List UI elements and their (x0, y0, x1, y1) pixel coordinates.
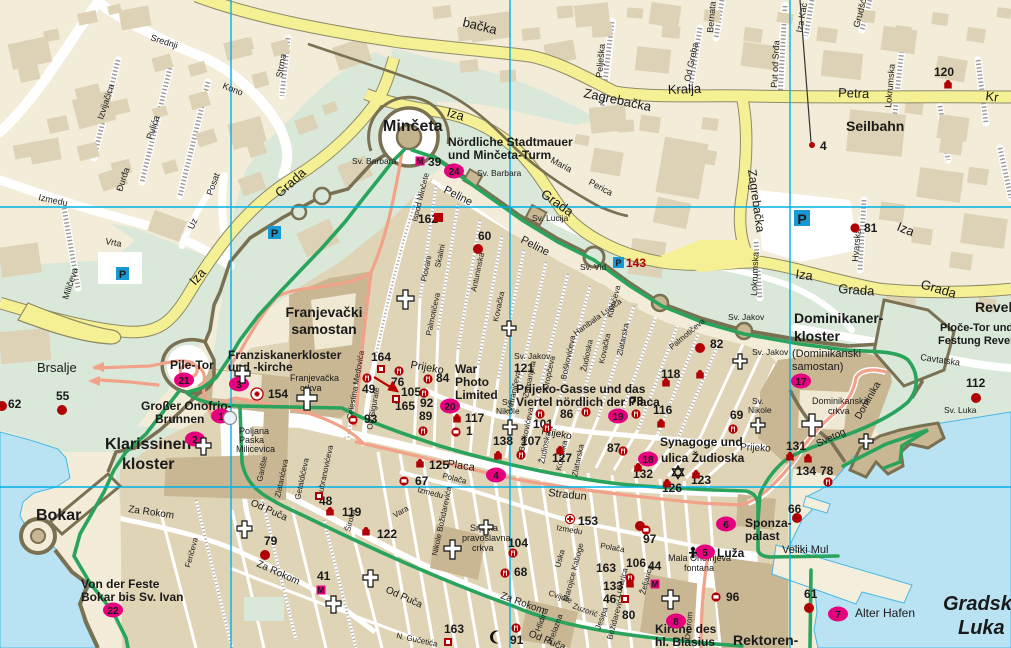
svg-text:crkva: crkva (828, 406, 850, 416)
svg-text:17: 17 (795, 377, 807, 388)
svg-text:8: 8 (673, 617, 679, 628)
svg-text:24: 24 (448, 167, 460, 178)
svg-text:106: 106 (626, 556, 646, 570)
svg-text:49: 49 (362, 382, 376, 396)
svg-text:und Minčeta-Turm: und Minčeta-Turm (448, 148, 551, 162)
svg-text:Sv. Lucija: Sv. Lucija (532, 213, 568, 223)
svg-text:Sponza-: Sponza- (745, 516, 792, 530)
svg-text:Gradsk: Gradsk (943, 593, 1011, 615)
svg-text:105: 105 (401, 385, 421, 399)
svg-text:Iza: Iza (795, 266, 815, 283)
svg-text:Ploče-Tor und: Ploče-Tor und (940, 322, 1011, 334)
svg-text:4: 4 (493, 471, 499, 482)
svg-text:Rektoren-: Rektoren- (733, 632, 799, 648)
svg-text:87: 87 (607, 441, 621, 455)
svg-text:Klarissinen-: Klarissinen- (105, 436, 197, 453)
svg-text:86: 86 (560, 407, 574, 421)
svg-text:War: War (455, 362, 478, 376)
svg-text:Kralja: Kralja (668, 81, 703, 97)
svg-text:96: 96 (726, 590, 740, 604)
svg-text:Franjevačka: Franjevačka (290, 373, 339, 383)
svg-text:5: 5 (702, 548, 708, 559)
svg-text:Festung Revelin: Festung Revelin (938, 335, 1011, 347)
svg-text:Milicevica: Milicevica (236, 444, 275, 454)
svg-text:1: 1 (466, 424, 473, 438)
svg-text:22: 22 (107, 606, 119, 617)
svg-text:Sv. Vid: Sv. Vid (580, 262, 606, 272)
svg-text:Seilbahn: Seilbahn (846, 118, 904, 134)
svg-text:Pile-Tor: Pile-Tor (170, 358, 214, 372)
svg-text:117: 117 (465, 411, 485, 425)
svg-text:104: 104 (508, 536, 528, 550)
svg-text:samostan: samostan (291, 321, 356, 337)
svg-text:Sv. Luka: Sv. Luka (944, 405, 977, 415)
svg-text:Bokar bis Sv. Ivan: Bokar bis Sv. Ivan (81, 590, 184, 604)
svg-text:Lokrumska: Lokrumska (749, 252, 761, 296)
svg-text:21: 21 (178, 376, 190, 387)
svg-text:Brsalje: Brsalje (37, 360, 77, 375)
svg-text:Luka: Luka (958, 617, 1005, 639)
svg-text:Petra: Petra (838, 85, 870, 101)
svg-text:163: 163 (444, 622, 464, 636)
svg-text:Prijeko: Prijeko (740, 442, 772, 455)
svg-text:39: 39 (428, 155, 442, 169)
svg-text:138: 138 (493, 434, 513, 448)
svg-text:92: 92 (420, 396, 434, 410)
svg-text:crkva: crkva (300, 383, 322, 393)
svg-text:134: 134 (796, 464, 816, 478)
svg-text:fontana: fontana (684, 563, 714, 573)
svg-text:20: 20 (444, 402, 456, 413)
svg-text:Von der Feste: Von der Feste (81, 577, 160, 591)
svg-text:Synagoge und: Synagoge und (660, 435, 743, 449)
svg-text:P: P (615, 258, 621, 268)
svg-text:Sv. Barbara: Sv. Barbara (352, 156, 397, 166)
svg-text:73: 73 (630, 394, 644, 408)
svg-text:119: 119 (342, 505, 362, 519)
svg-text:Photo: Photo (455, 375, 489, 389)
svg-text:kloster: kloster (122, 456, 174, 473)
svg-text:19: 19 (612, 412, 624, 423)
svg-text:ulica Žudioska: ulica Žudioska (661, 450, 745, 465)
svg-text:69: 69 (730, 408, 744, 422)
svg-text:Sv. Jakov: Sv. Jakov (728, 312, 765, 322)
svg-text:125: 125 (429, 458, 449, 472)
svg-text:55: 55 (56, 389, 70, 403)
svg-text:116: 116 (653, 403, 673, 417)
svg-text:79: 79 (264, 534, 278, 548)
svg-text:palast: palast (745, 529, 780, 543)
svg-text:kloster: kloster (794, 328, 840, 344)
svg-text:93: 93 (364, 412, 378, 426)
svg-text:Bokar: Bokar (36, 507, 81, 524)
svg-text:153: 153 (578, 514, 598, 528)
svg-text:P: P (797, 211, 806, 227)
svg-text:164: 164 (371, 350, 391, 364)
svg-text:121: 121 (514, 361, 534, 375)
svg-text:91: 91 (510, 633, 524, 647)
svg-text:60: 60 (478, 229, 492, 243)
svg-text:Revel: Revel (975, 299, 1011, 315)
svg-text:81: 81 (864, 221, 878, 235)
svg-text:18: 18 (642, 455, 654, 466)
svg-text:Brunnen: Brunnen (155, 412, 204, 426)
svg-text:143: 143 (626, 256, 646, 270)
svg-text:7: 7 (835, 610, 841, 621)
svg-text:Dominikaner-: Dominikaner- (794, 310, 884, 326)
svg-text:154: 154 (268, 387, 288, 401)
svg-text:Franjevački: Franjevački (285, 304, 362, 320)
svg-text:107: 107 (521, 434, 541, 448)
svg-text:131: 131 (786, 439, 806, 453)
svg-text:68: 68 (514, 565, 528, 579)
svg-text:Alter Hafen: Alter Hafen (855, 606, 915, 620)
svg-text:samostan): samostan) (792, 361, 843, 373)
svg-text:41: 41 (317, 569, 331, 583)
svg-text:84: 84 (436, 371, 450, 385)
svg-text:89: 89 (419, 409, 433, 423)
svg-text:82: 82 (710, 337, 724, 351)
svg-text:46: 46 (603, 592, 617, 606)
svg-text:133: 133 (603, 579, 623, 593)
svg-text:Sv. Barbara: Sv. Barbara (477, 168, 522, 178)
svg-text:Prijeko-Gasse und das: Prijeko-Gasse und das (516, 382, 646, 396)
svg-text:Nikole: Nikole (496, 406, 520, 416)
svg-text:44: 44 (648, 559, 662, 573)
svg-text:120: 120 (934, 65, 954, 79)
svg-text:P: P (119, 269, 126, 281)
svg-text:6: 6 (723, 520, 729, 531)
svg-text:163: 163 (596, 561, 616, 575)
svg-text:P: P (271, 228, 278, 240)
svg-text:67: 67 (415, 474, 429, 488)
svg-text:62: 62 (8, 397, 22, 411)
svg-text:Sv. Jakov: Sv. Jakov (752, 347, 789, 357)
svg-text:112: 112 (966, 376, 986, 390)
svg-text:4: 4 (820, 139, 827, 153)
svg-text:80: 80 (622, 608, 636, 622)
svg-text:122: 122 (377, 527, 397, 541)
svg-text:Veliki Mul: Veliki Mul (782, 544, 828, 556)
svg-text:Sv. Jakov: Sv. Jakov (514, 351, 551, 361)
svg-text:(Dominikanski: (Dominikanski (792, 348, 861, 360)
svg-text:Grada: Grada (838, 281, 876, 299)
svg-text:Nördliche Stadtmauer: Nördliche Stadtmauer (448, 135, 573, 149)
svg-text:Minčeta: Minčeta (383, 118, 443, 135)
svg-text:crkva: crkva (472, 543, 494, 553)
svg-text:Limited: Limited (455, 388, 498, 402)
svg-text:78: 78 (820, 464, 834, 478)
svg-text:Nikole: Nikole (748, 405, 772, 415)
svg-text:61: 61 (804, 587, 818, 601)
